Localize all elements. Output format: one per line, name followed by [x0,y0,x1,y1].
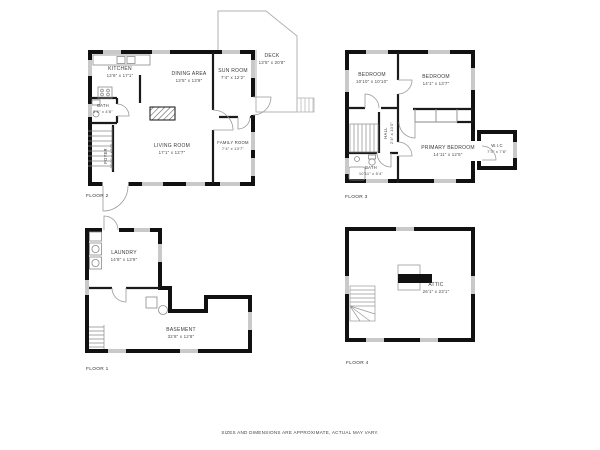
floor-4-label: FLOOR 4 [346,361,369,366]
floorplan-page: KITCHEN 12'6" x 17'1" DINING AREA 13'5" … [0,0,600,450]
room-name: LAUNDRY [111,250,138,257]
fireplace [150,107,175,120]
room-dims: 17'1" x 12'7" [154,150,190,156]
entry-door-gap [103,182,129,188]
floor-2-plan [88,11,314,211]
room-dims: 12'6" x 17'1" [107,73,134,79]
floorplan-drawing [0,0,600,450]
disclaimer-text: SIZES AND DIMENSIONS ARE APPROXIMATE, AC… [0,430,600,435]
room-name: LIVING ROOM [154,143,190,150]
room-label-bedroom-1: BEDROOM 10'10" x 10'10" [356,72,388,86]
room-dims: 7'4" x 12'2" [218,75,248,81]
room-dims: 14'1" x 13'7" [422,81,450,87]
deck-door-gap [251,97,256,115]
floor-4-plan [347,229,473,340]
room-label-sun-room: SUN ROOM 7'4" x 12'2" [218,68,248,82]
room-dims: 13'5" x 13'9" [172,78,207,84]
room-label-attic: ATTIC 26'1" x 23'1" [423,282,450,296]
room-label-bedroom-2: BEDROOM 14'1" x 13'7" [422,74,450,88]
room-label-wic: W.I.C 7'3" x 7'8" [487,143,507,155]
room-label-bath-floor-3: BATH 10'11" x 5'4" [359,165,383,177]
room-dims: 5'6" x 4'8" [93,109,113,115]
room-dims: 10'11" x 5'4" [359,171,383,177]
room-dims: 32'8" x 12'8" [166,334,196,340]
room-label-basement: BASEMENT 32'8" x 12'8" [166,327,196,341]
room-label-kitchen: KITCHEN 12'6" x 17'1" [107,66,134,80]
room-name: DINING AREA [172,71,207,78]
room-label-laundry: LAUNDRY 14'8" x 13'9" [111,250,138,264]
floor-1-label: FLOOR 1 [86,367,109,372]
floor-3-label: FLOOR 3 [345,195,368,200]
room-label-dining-area: DINING AREA 13'5" x 13'9" [172,71,207,85]
room-name: KITCHEN [107,66,134,73]
floor-2-label: FLOOR 2 [86,194,109,199]
room-name: SUN ROOM [218,68,248,75]
room-dims: 14'11" x 12'5" [421,152,475,158]
room-dims: 7'4" x 13'7" [217,146,248,152]
room-dims: 7'3" x 7'8" [487,149,507,155]
room-name: ATTIC [423,282,450,289]
room-name: DECK [259,53,286,60]
room-label-hall: HALL 2'4" x 10'0" [383,122,395,144]
floor-1-entry-gap [102,228,119,233]
room-dims: 14'8" x 13'9" [111,257,138,263]
room-dims: 2'4" x 10'0" [389,122,395,144]
room-label-living-room: LIVING ROOM 17'1" x 12'7" [154,143,190,157]
room-label-primary-bedroom: PRIMARY BEDROOM 14'11" x 12'5" [421,145,475,159]
room-name: BEDROOM [356,72,388,79]
room-name: PRIMARY BEDROOM [421,145,475,152]
room-dims: 10'10" x 10'10" [356,79,388,85]
room-label-family-room: FAMILY ROOM 7'4" x 13'7" [217,140,248,152]
room-label-bath-floor-2: BATH 5'6" x 4'8" [93,103,113,115]
room-name: BASEMENT [166,327,196,334]
room-dims: 26'1" x 23'1" [423,289,450,295]
room-name: BEDROOM [422,74,450,81]
room-dims: 10'0" x 4'10" [109,144,115,169]
room-dims: 13'5" x 20'8" [259,60,286,66]
room-label-foyer: FOYER 10'0" x 4'10" [103,144,115,169]
room-label-deck: DECK 13'5" x 20'8" [259,53,286,67]
